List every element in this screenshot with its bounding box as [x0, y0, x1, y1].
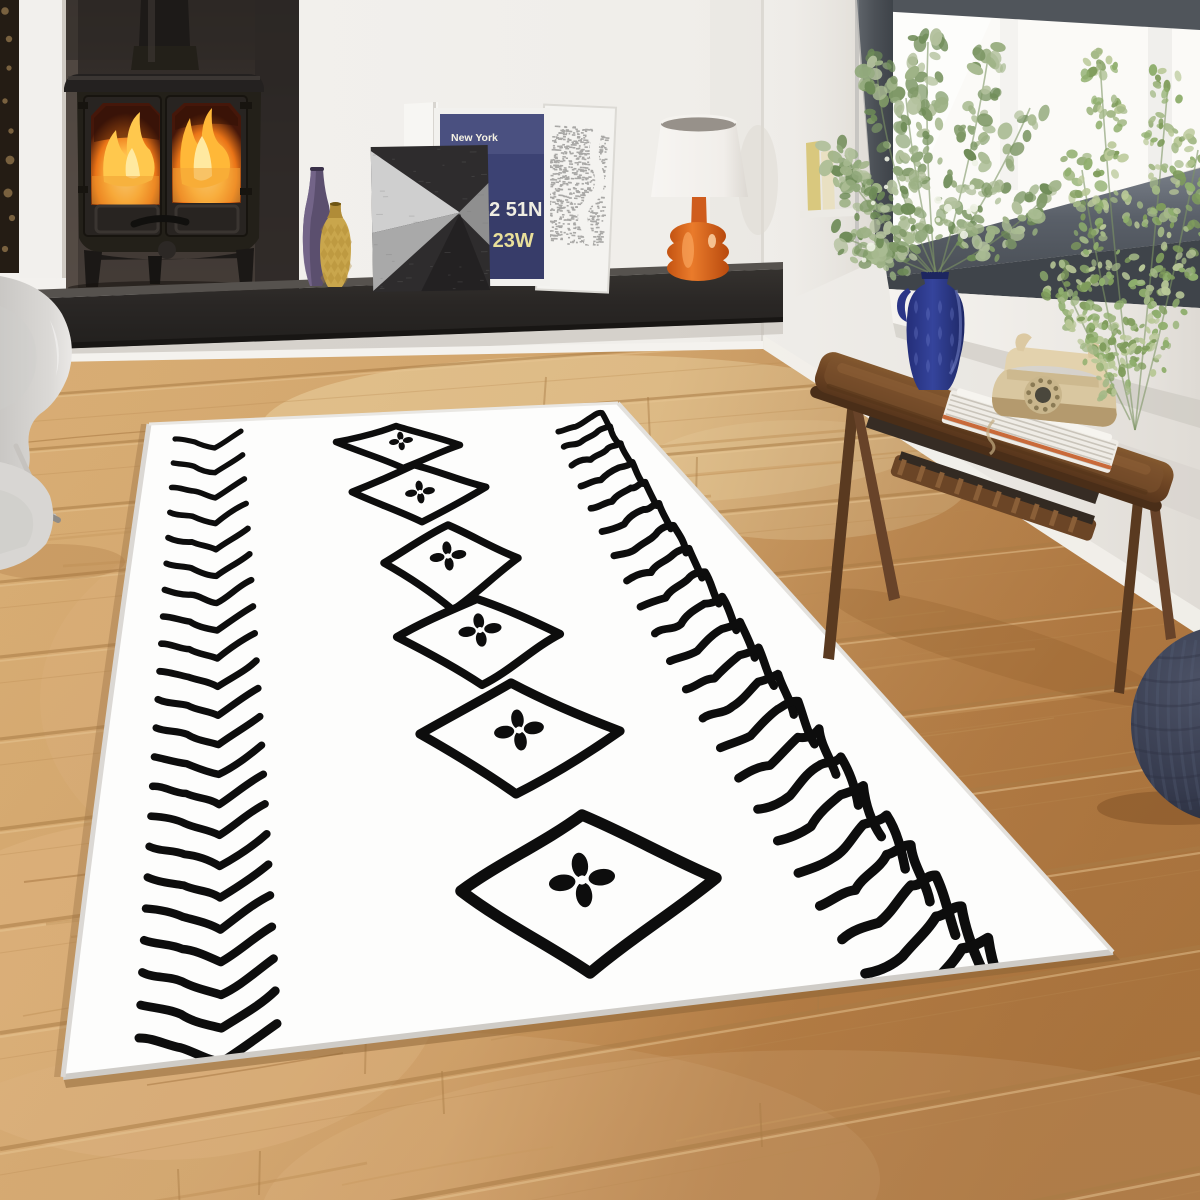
svg-text:New York: New York: [451, 132, 498, 144]
